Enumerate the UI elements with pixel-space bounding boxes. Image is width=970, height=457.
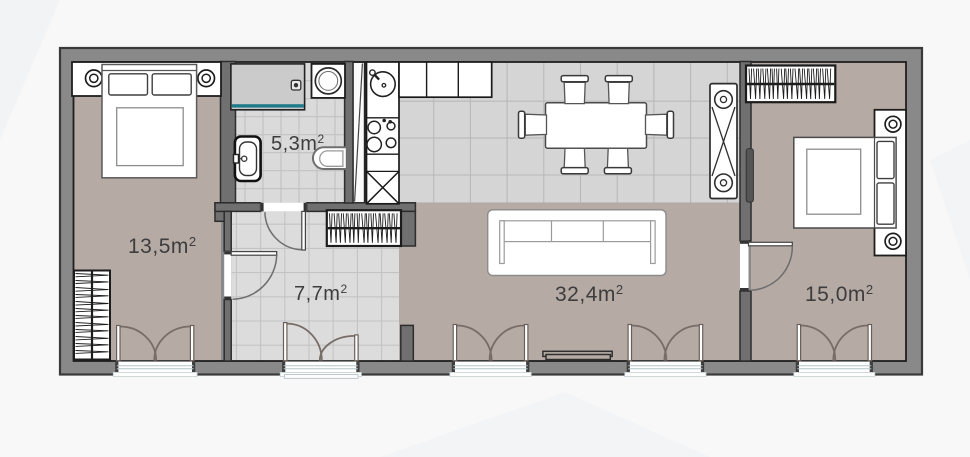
svg-text:13,5m2: 13,5m2 [128, 234, 197, 258]
svg-text:7,7m2: 7,7m2 [294, 282, 348, 305]
svg-text:5,3m2: 5,3m2 [271, 132, 325, 155]
svg-text:32,4m2: 32,4m2 [555, 282, 624, 306]
svg-text:15,0m2: 15,0m2 [805, 282, 874, 306]
